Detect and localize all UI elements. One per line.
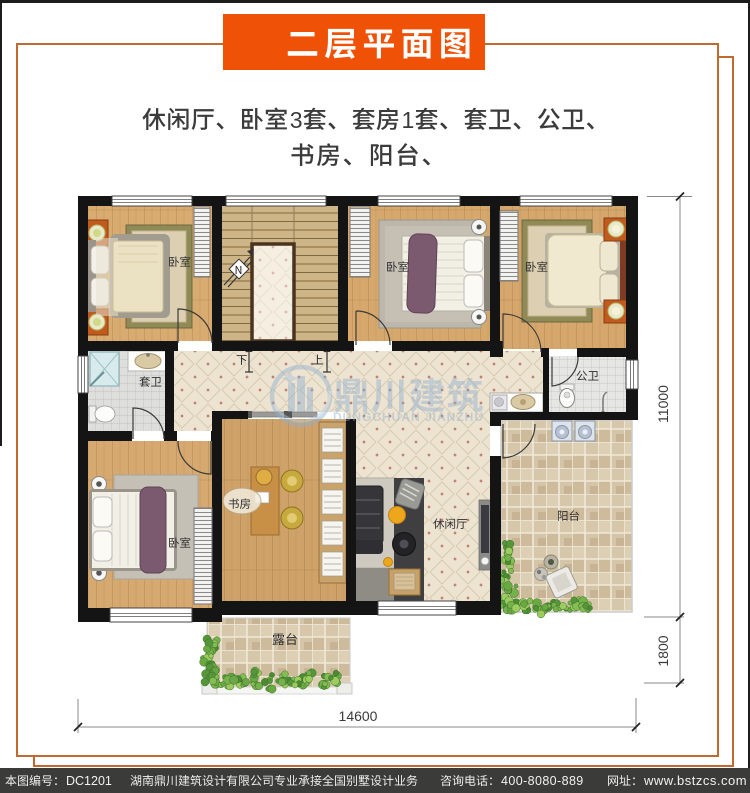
svg-text:11000: 11000 — [655, 385, 671, 423]
svg-text:400-8080-889: 400-8080-889 — [501, 774, 584, 788]
svg-text:DC1201: DC1201 — [66, 774, 112, 788]
svg-text:1800: 1800 — [655, 635, 671, 666]
svg-text:14600: 14600 — [339, 708, 378, 724]
svg-text:1: 1 — [402, 107, 415, 133]
svg-text:DUNGCHUAN JIANZHU: DUNGCHUAN JIANZHU — [333, 410, 484, 424]
svg-text:www.bstzcs.com: www.bstzcs.com — [643, 773, 747, 788]
svg-text:3: 3 — [290, 107, 303, 133]
